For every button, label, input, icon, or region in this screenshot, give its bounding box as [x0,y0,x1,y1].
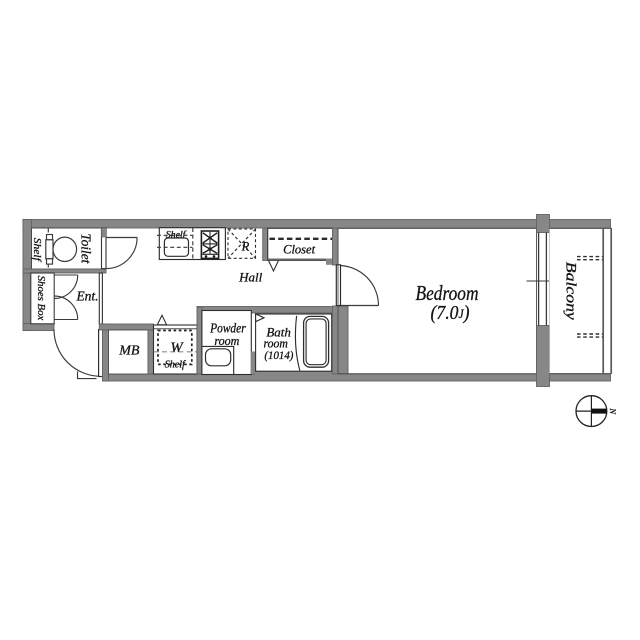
svg-text:(7.0J): (7.0J) [431,302,470,324]
svg-text:Shelf: Shelf [31,238,42,263]
svg-text:Hall: Hall [238,270,263,285]
svg-text:Closet: Closet [283,243,315,257]
svg-text:room: room [264,336,288,350]
svg-text:R: R [241,239,250,253]
svg-text:room: room [214,334,239,348]
svg-text:(1014): (1014) [264,350,293,362]
svg-text:Shoes Box: Shoes Box [35,276,47,321]
svg-text:Ent.: Ent. [75,288,98,303]
svg-text:MB: MB [118,344,140,359]
svg-text:Balcony: Balcony [562,262,578,320]
svg-text:Shelf: Shelf [165,359,186,370]
svg-text:Toilet: Toilet [79,233,94,264]
svg-text:W: W [170,340,184,356]
